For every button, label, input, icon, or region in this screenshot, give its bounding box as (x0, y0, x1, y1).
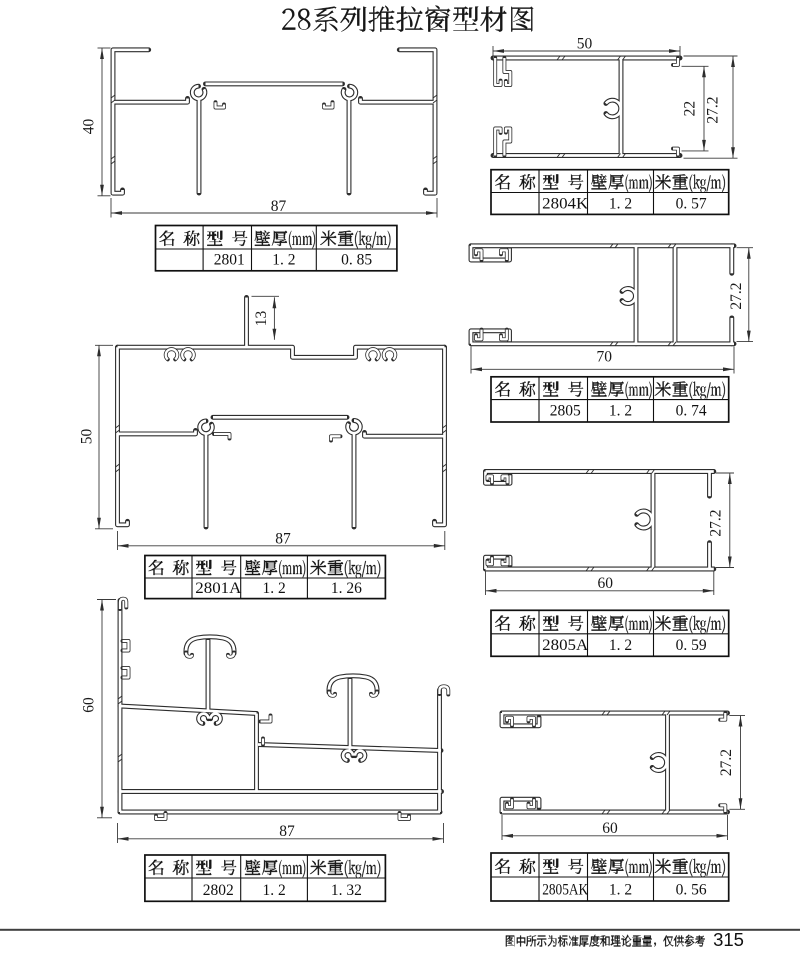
svg-text:0. 59: 0. 59 (676, 637, 707, 654)
svg-text:50: 50 (577, 36, 593, 53)
svg-text:87: 87 (275, 531, 291, 548)
svg-text:27.2: 27.2 (718, 749, 735, 776)
svg-text:13: 13 (253, 311, 270, 327)
svg-text:1. 2: 1. 2 (262, 882, 285, 899)
svg-text:1. 32: 1. 32 (331, 882, 362, 899)
svg-text:60: 60 (598, 575, 614, 592)
svg-text:1. 2: 1. 2 (272, 252, 295, 269)
svg-text:1. 2: 1. 2 (609, 195, 632, 212)
svg-text:2805AK: 2805AK (542, 881, 589, 898)
svg-text:40: 40 (81, 119, 98, 135)
svg-text:1. 26: 1. 26 (331, 580, 362, 597)
svg-text:60: 60 (80, 697, 97, 713)
svg-text:0. 57: 0. 57 (676, 195, 707, 212)
svg-text:1. 2: 1. 2 (262, 580, 285, 597)
svg-text:27.2: 27.2 (708, 509, 725, 536)
svg-text:60: 60 (602, 820, 618, 837)
svg-text:2802: 2802 (203, 882, 234, 899)
svg-text:0. 56: 0. 56 (676, 881, 707, 898)
svg-text:1. 2: 1. 2 (609, 881, 632, 898)
svg-text:2805A: 2805A (542, 637, 589, 654)
svg-text:0. 85: 0. 85 (341, 252, 372, 269)
svg-text:0. 74: 0. 74 (676, 403, 707, 420)
svg-text:2801A: 2801A (195, 580, 242, 597)
svg-text:87: 87 (279, 823, 295, 840)
svg-text:2805: 2805 (550, 403, 581, 420)
svg-text:87: 87 (271, 198, 287, 215)
svg-text:50: 50 (79, 429, 96, 445)
svg-text:1. 2: 1. 2 (609, 403, 632, 420)
svg-text:27.2: 27.2 (728, 282, 745, 309)
svg-text:70: 70 (597, 348, 613, 365)
svg-text:22: 22 (681, 101, 698, 117)
svg-text:1. 2: 1. 2 (609, 637, 632, 654)
svg-text:315: 315 (713, 929, 744, 950)
svg-text:27.2: 27.2 (704, 96, 721, 123)
svg-text:2804K: 2804K (542, 195, 589, 212)
svg-text:2801: 2801 (214, 252, 245, 269)
